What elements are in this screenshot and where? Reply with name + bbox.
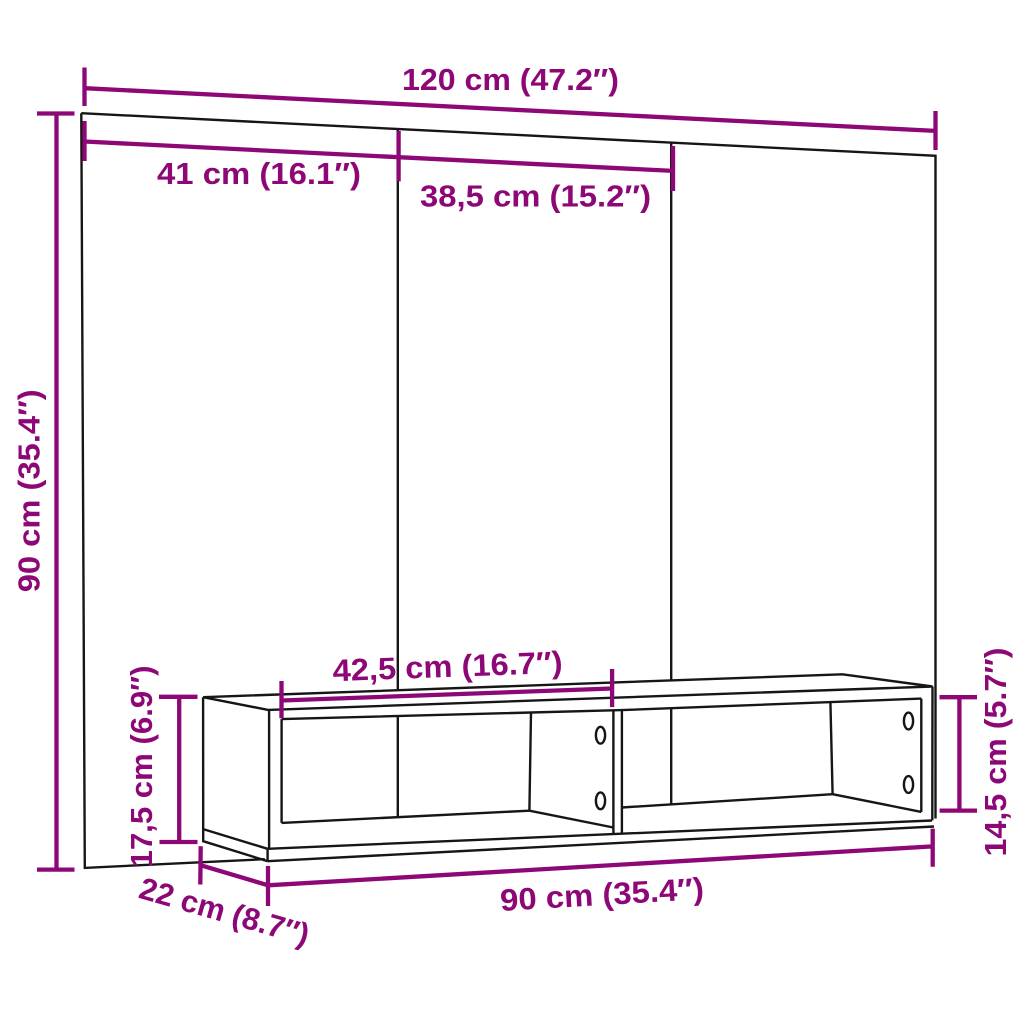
svg-text:42,5 cm (16.7″): 42,5 cm (16.7″) — [332, 645, 563, 688]
svg-text:90 cm (35.4″): 90 cm (35.4″) — [499, 871, 705, 918]
svg-text:38,5 cm (15.2″): 38,5 cm (15.2″) — [420, 179, 651, 214]
svg-text:41 cm (16.1″): 41 cm (16.1″) — [157, 156, 361, 191]
svg-text:14,5 cm (5.7″): 14,5 cm (5.7″) — [978, 648, 1013, 857]
svg-text:90 cm (35.4″): 90 cm (35.4″) — [12, 389, 47, 592]
svg-text:17,5 cm (6.9″): 17,5 cm (6.9″) — [124, 666, 159, 868]
svg-text:120 cm (47.2″): 120 cm (47.2″) — [402, 62, 619, 97]
